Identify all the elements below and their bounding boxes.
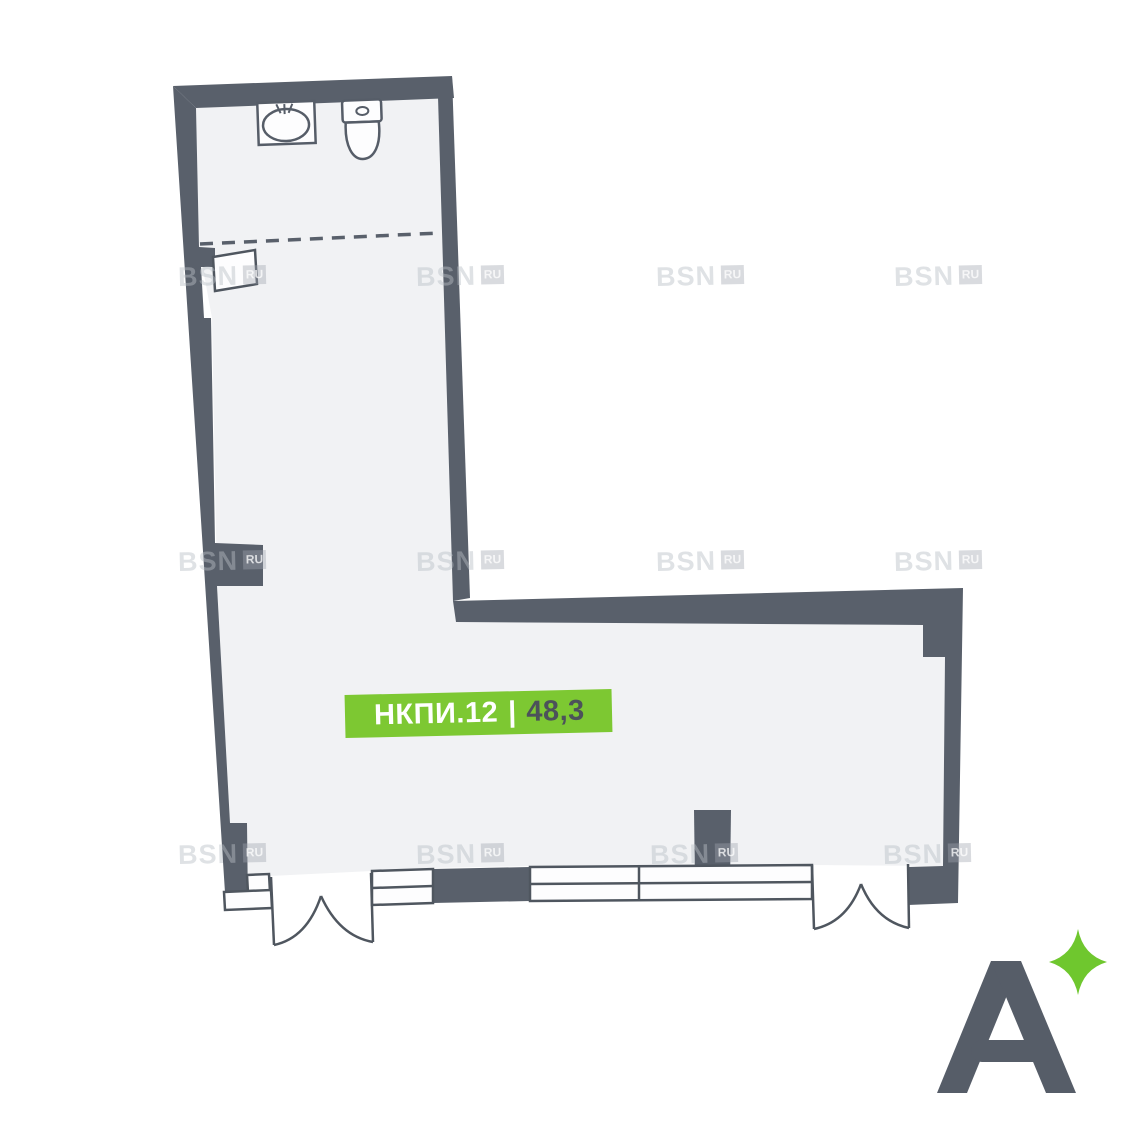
wall-bottom-middle [433,867,530,903]
unit-code: НКПИ.12 [374,697,499,733]
brand-logo [937,929,1107,1093]
unit-area-value: 48,3 [526,695,585,729]
floorplan-drawing [0,0,1146,1146]
door-double-right [812,864,909,929]
sparkle-icon [1049,929,1107,995]
unit-label: НКПИ.12 | 48,3 [345,689,613,738]
floorplan-page: BSNRU BSNRU BSNRU BSNRU BSNRU BSNRU BSNR… [0,0,1146,1146]
bathroom-door-leaf [213,250,257,291]
window-left [372,869,433,905]
window-long [530,865,812,901]
logo-letter-a [937,961,1076,1093]
door-double-left [271,873,373,945]
unit-label-separator: | [508,696,517,729]
sink-icon [257,101,315,145]
floor-area [196,96,945,878]
